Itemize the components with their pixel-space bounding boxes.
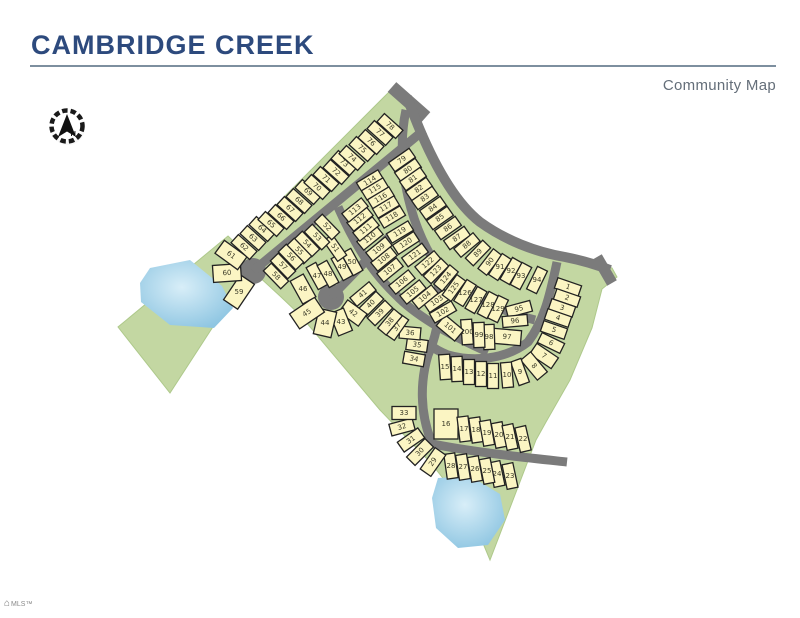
lot-number: 12 <box>477 370 486 378</box>
community-map-svg: 1234567891011121314151617181920212223242… <box>0 0 800 618</box>
lot-number: 48 <box>324 270 333 278</box>
lot-number: 98 <box>485 333 494 341</box>
lot-number: 13 <box>465 368 474 376</box>
community-map-page: CAMBRIDGE CREEK Community Map 1234567891… <box>0 0 800 618</box>
lot-number: 15 <box>441 363 450 371</box>
lot-number: 17 <box>460 425 469 433</box>
lot-number: 33 <box>400 409 409 417</box>
compass-north-label: N <box>71 129 76 138</box>
lot-number: 9 <box>518 368 522 376</box>
house-icon: ⌂ <box>4 600 10 608</box>
lot-number: 20 <box>495 431 504 439</box>
lot-99: 99 <box>473 322 485 347</box>
lot-97: 97 <box>492 328 521 345</box>
lot-number: 60 <box>222 269 231 278</box>
lot-13: 13 <box>464 360 475 385</box>
lot-number: 21 <box>506 433 515 441</box>
lot-16: 16 <box>434 409 458 439</box>
lot-number: 43 <box>337 318 346 326</box>
lot-number: 35 <box>412 340 422 349</box>
lot-14: 14 <box>451 356 463 381</box>
site-plan-map: 1234567891011121314151617181920212223242… <box>0 0 800 618</box>
lot-96: 96 <box>502 314 528 327</box>
lot-number: 14 <box>453 365 462 373</box>
lot-number: 129 <box>491 305 504 313</box>
lot-number: 44 <box>321 319 330 327</box>
lot-number: 92 <box>507 267 516 275</box>
lot-number: 96 <box>510 317 520 326</box>
compass-icon: N <box>51 111 85 146</box>
mls-logo-text: MLS™ <box>11 601 32 608</box>
lot-12: 12 <box>476 362 487 387</box>
lot-11: 11 <box>488 364 499 389</box>
lot-number: 10 <box>503 371 512 379</box>
lot-number: 97 <box>502 333 512 342</box>
lot-number: 50 <box>348 258 357 266</box>
lot-number: 11 <box>489 372 498 380</box>
lot-number: 94 <box>533 276 542 284</box>
lot-number: 27 <box>459 463 468 471</box>
lot-number: 23 <box>506 472 515 480</box>
lot-15: 15 <box>439 354 452 380</box>
lot-number: 19 <box>483 429 492 437</box>
lot-number: 26 <box>471 465 480 473</box>
lot-number: 91 <box>496 263 505 271</box>
mls-logo: ⌂ MLS™ <box>4 600 32 608</box>
lot-number: 99 <box>475 331 484 339</box>
lot-number: 49 <box>338 263 347 271</box>
lot-number: 22 <box>519 435 528 443</box>
lot-number: 93 <box>517 272 526 280</box>
lot-number: 47 <box>313 272 322 280</box>
lot-number: 25 <box>483 467 492 475</box>
lot-10: 10 <box>500 362 513 388</box>
lot-33: 33 <box>392 407 416 420</box>
lot-number: 59 <box>235 288 244 296</box>
lot-number: 36 <box>405 329 415 338</box>
lot-number: 18 <box>472 426 481 434</box>
lot-number: 16 <box>442 420 451 428</box>
lot-number: 28 <box>447 462 456 470</box>
lot-number: 46 <box>299 285 308 293</box>
